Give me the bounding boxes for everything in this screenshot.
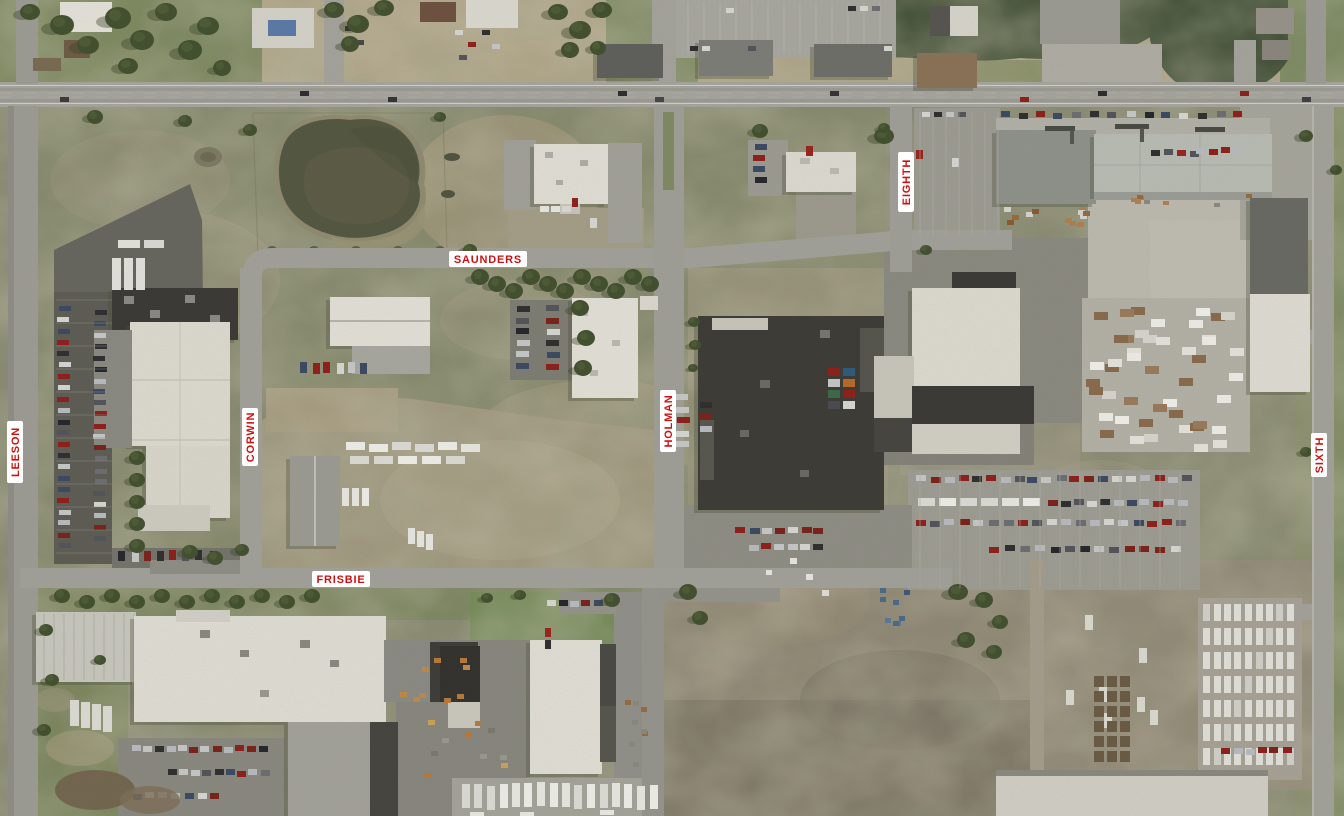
svg-text:FRISBIE: FRISBIE bbox=[317, 574, 366, 586]
svg-text:LEESON: LEESON bbox=[10, 427, 22, 477]
svg-text:HOLMAN: HOLMAN bbox=[663, 394, 675, 447]
svg-text:CORWIN: CORWIN bbox=[245, 412, 257, 462]
svg-text:SAUNDERS: SAUNDERS bbox=[454, 254, 522, 266]
svg-text:EIGHTH: EIGHTH bbox=[901, 159, 913, 205]
svg-text:SIXTH: SIXTH bbox=[1314, 437, 1326, 473]
